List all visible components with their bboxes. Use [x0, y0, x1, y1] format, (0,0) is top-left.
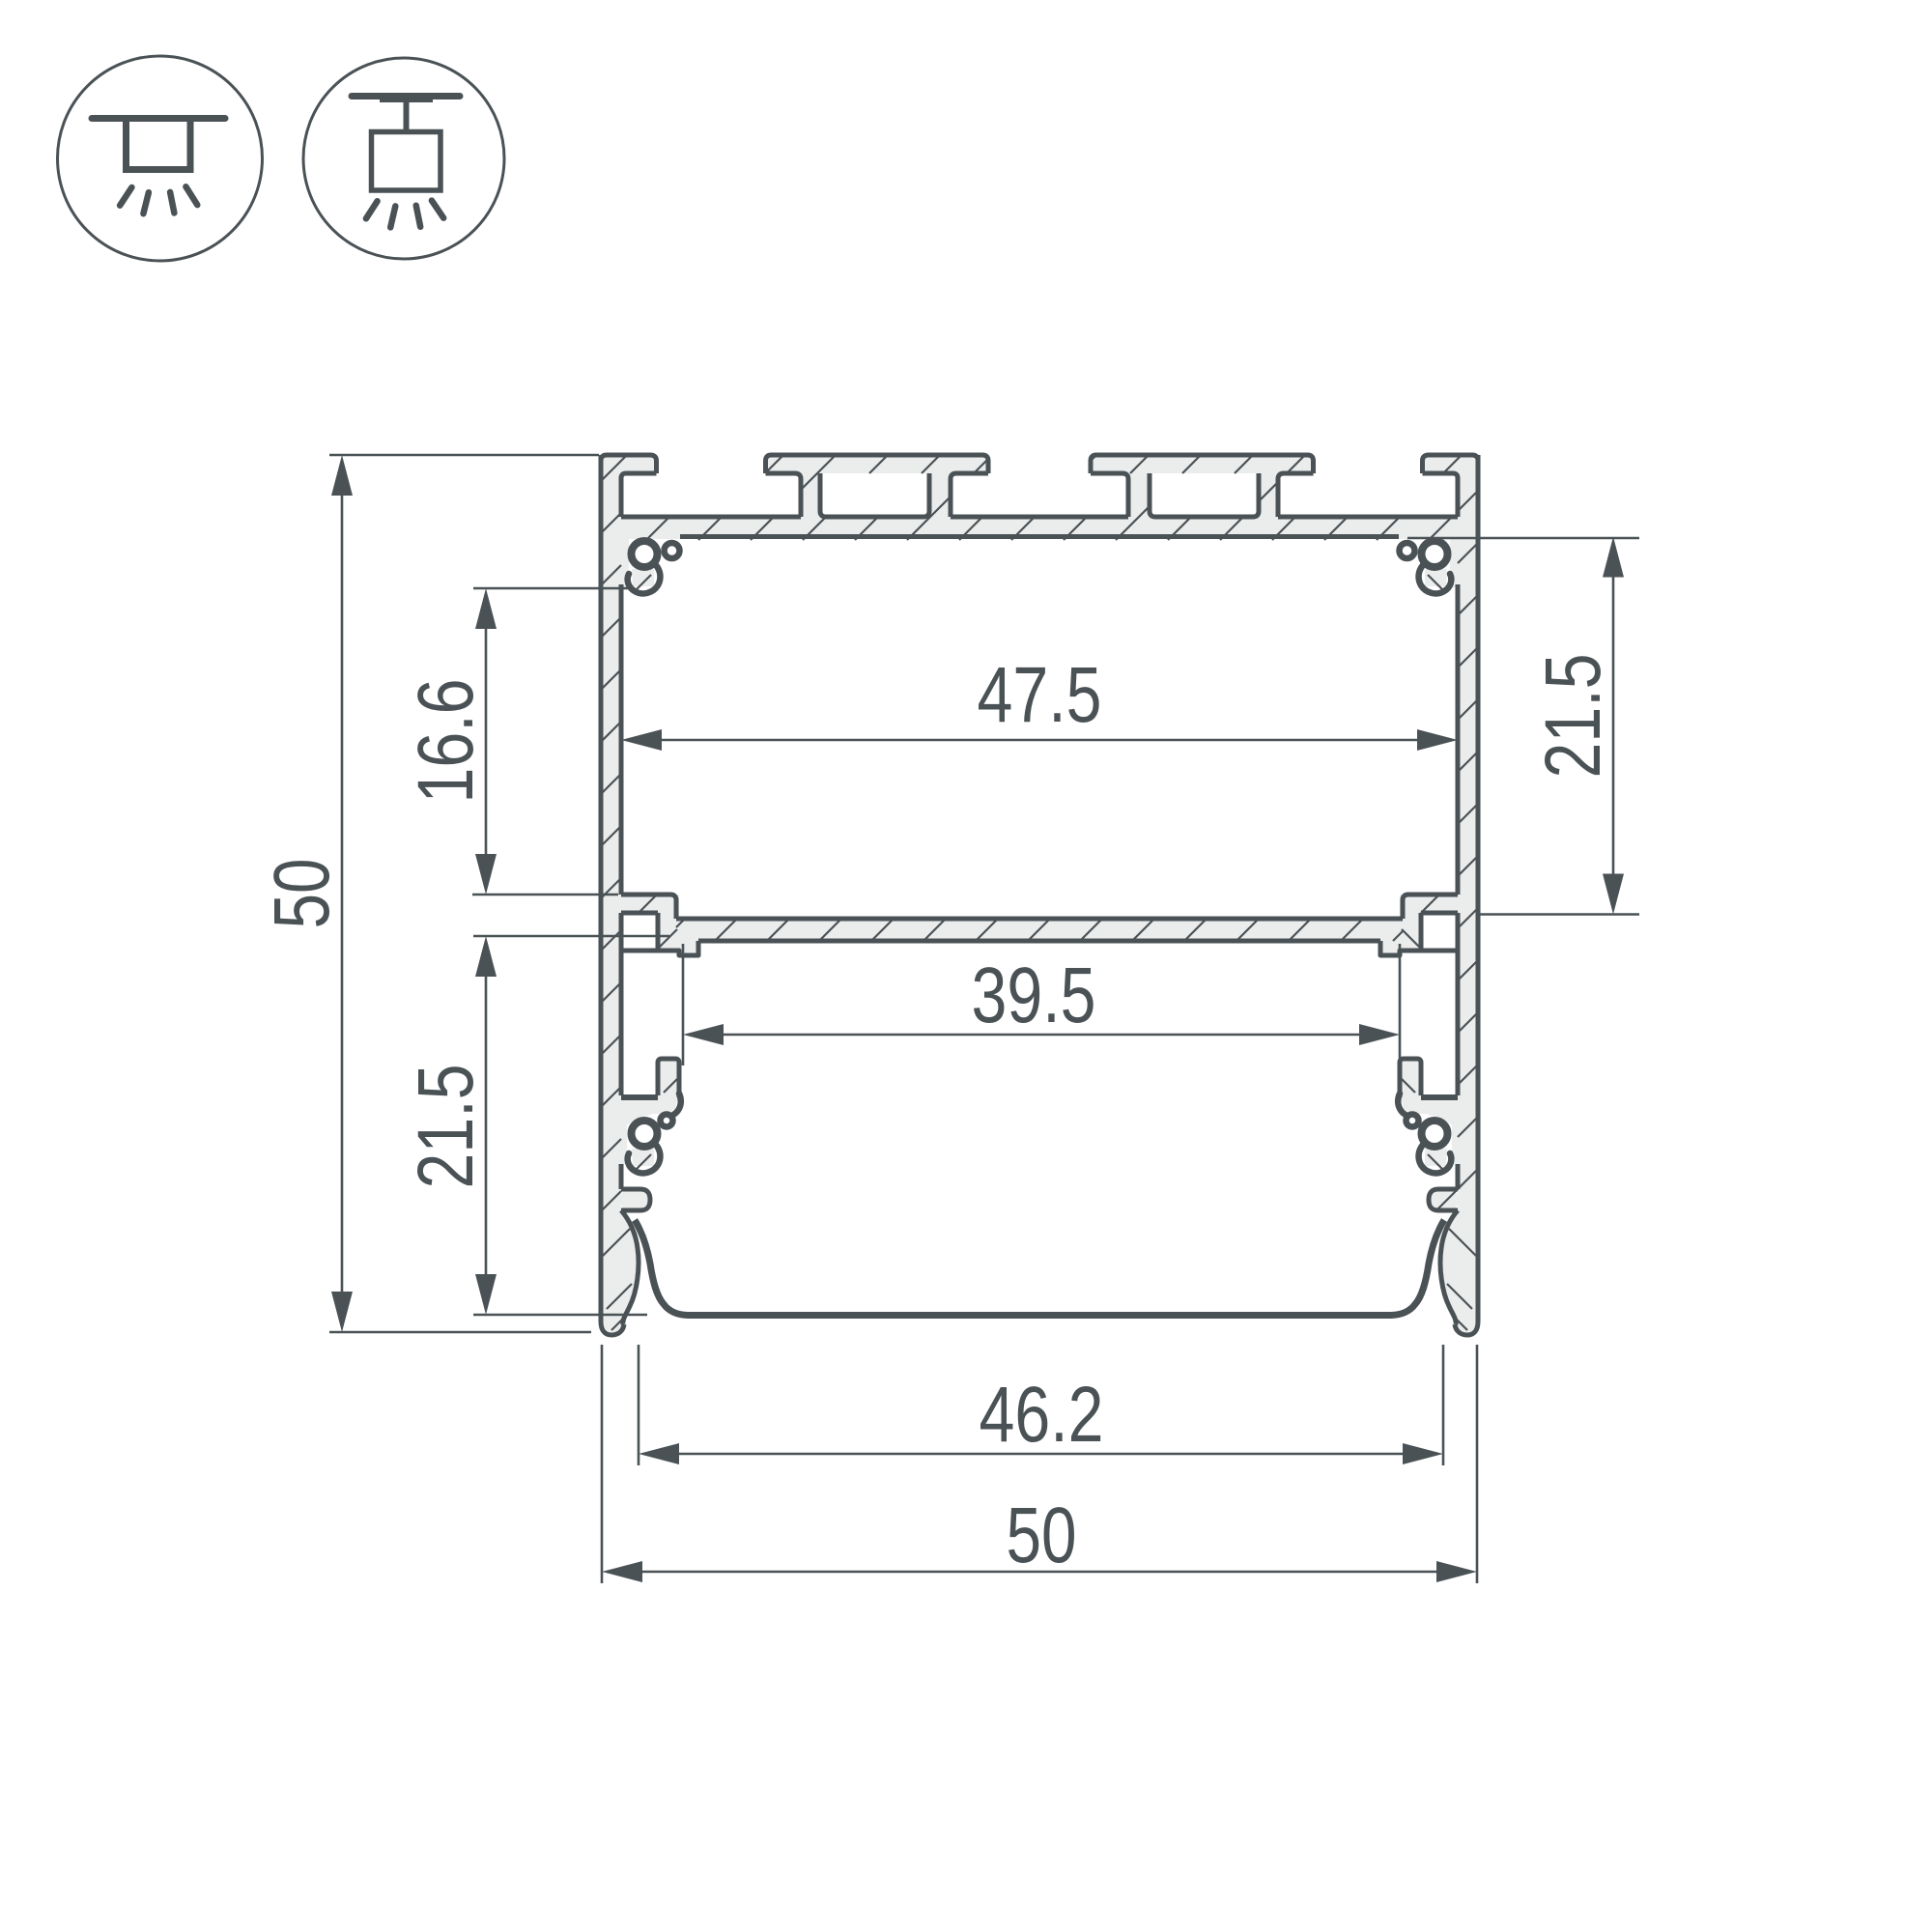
- svg-text:21.5: 21.5: [402, 1065, 490, 1189]
- svg-text:46.2: 46.2: [980, 1371, 1104, 1459]
- svg-text:50: 50: [1007, 1492, 1077, 1579]
- svg-text:21.5: 21.5: [1529, 654, 1617, 779]
- svg-text:39.5: 39.5: [972, 952, 1096, 1039]
- svg-text:47.5: 47.5: [978, 651, 1102, 739]
- svg-text:50: 50: [258, 859, 346, 929]
- svg-text:16.6: 16.6: [402, 679, 490, 804]
